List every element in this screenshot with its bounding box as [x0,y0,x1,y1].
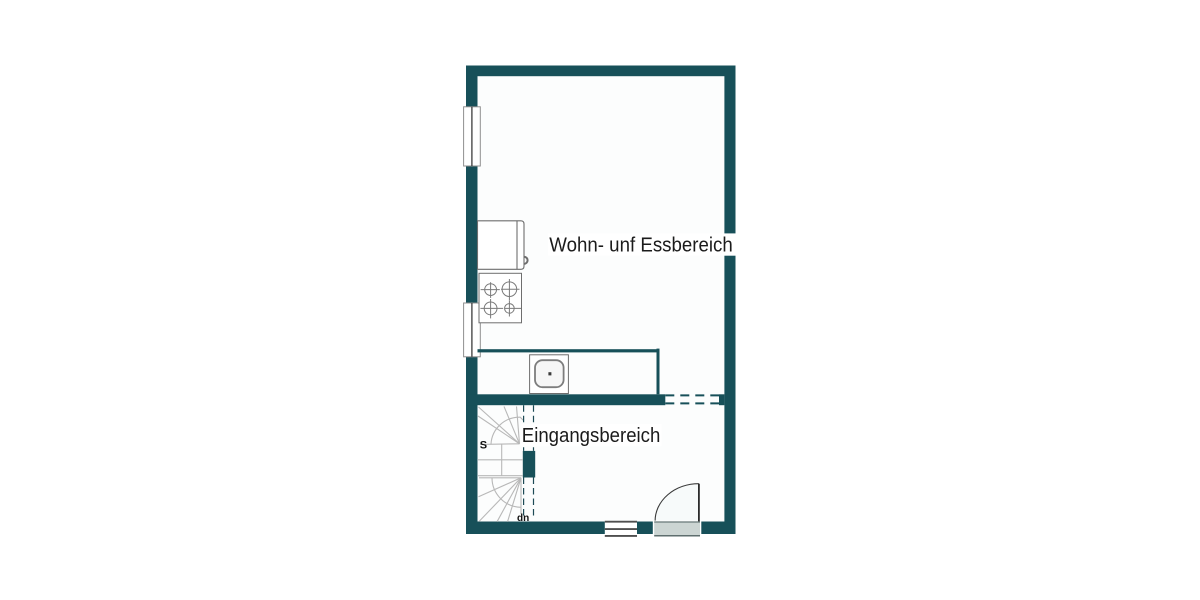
svg-text:dn: dn [517,513,529,524]
svg-text:Eingangsbereich: Eingangsbereich [522,425,661,447]
svg-text:S: S [480,439,487,451]
svg-text:Wohn- unf Essbereich: Wohn- unf Essbereich [549,235,733,257]
